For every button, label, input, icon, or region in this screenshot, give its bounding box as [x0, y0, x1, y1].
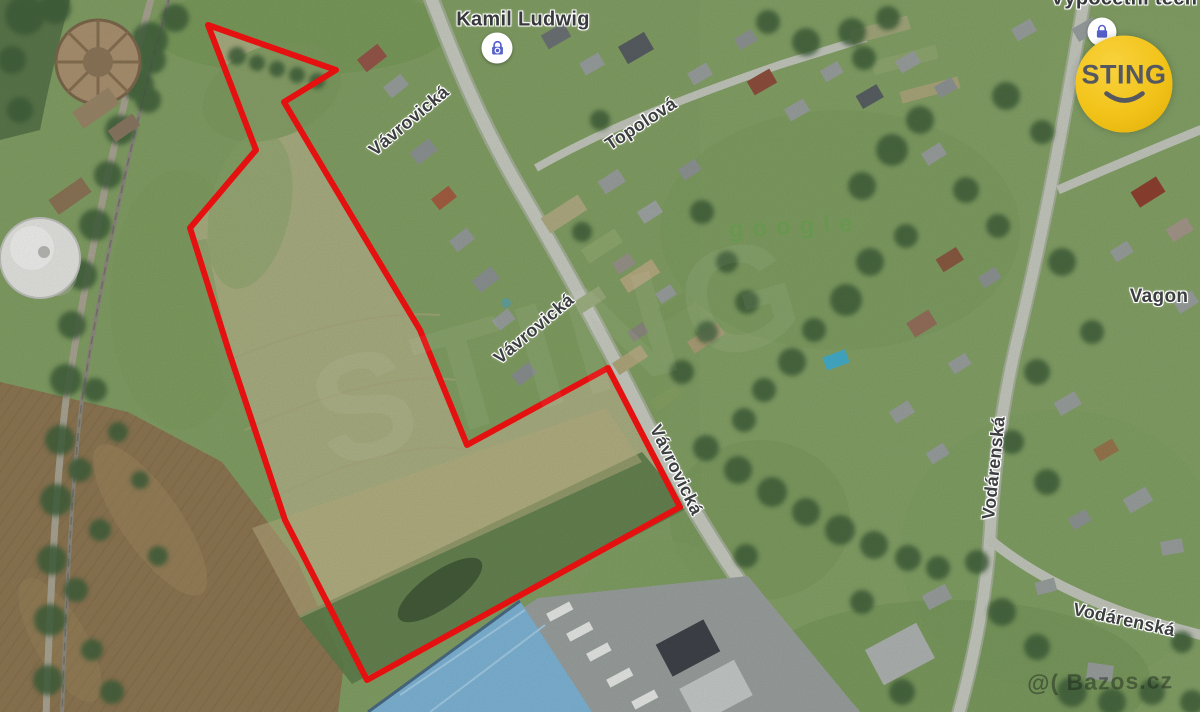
- bazos-watermark: @( Bazos.cz: [1027, 667, 1173, 697]
- satellite-map[interactable]: STING google Kamil Ludwig Výpočetní tech…: [0, 0, 1200, 712]
- poi-label-kamil-ludwig[interactable]: Kamil Ludwig: [456, 9, 590, 32]
- sting-logo: STING: [1076, 36, 1173, 133]
- shopping-poi-marker-1[interactable]: [482, 33, 513, 64]
- sting-logo-text: STING: [1081, 62, 1166, 89]
- shopping-bag-icon: [488, 39, 506, 57]
- place-label-vagon: Vagon: [1130, 286, 1189, 308]
- poi-label-vypocetni-tech[interactable]: Výpočetní tech: [1051, 0, 1197, 11]
- smile-icon: [1101, 91, 1147, 107]
